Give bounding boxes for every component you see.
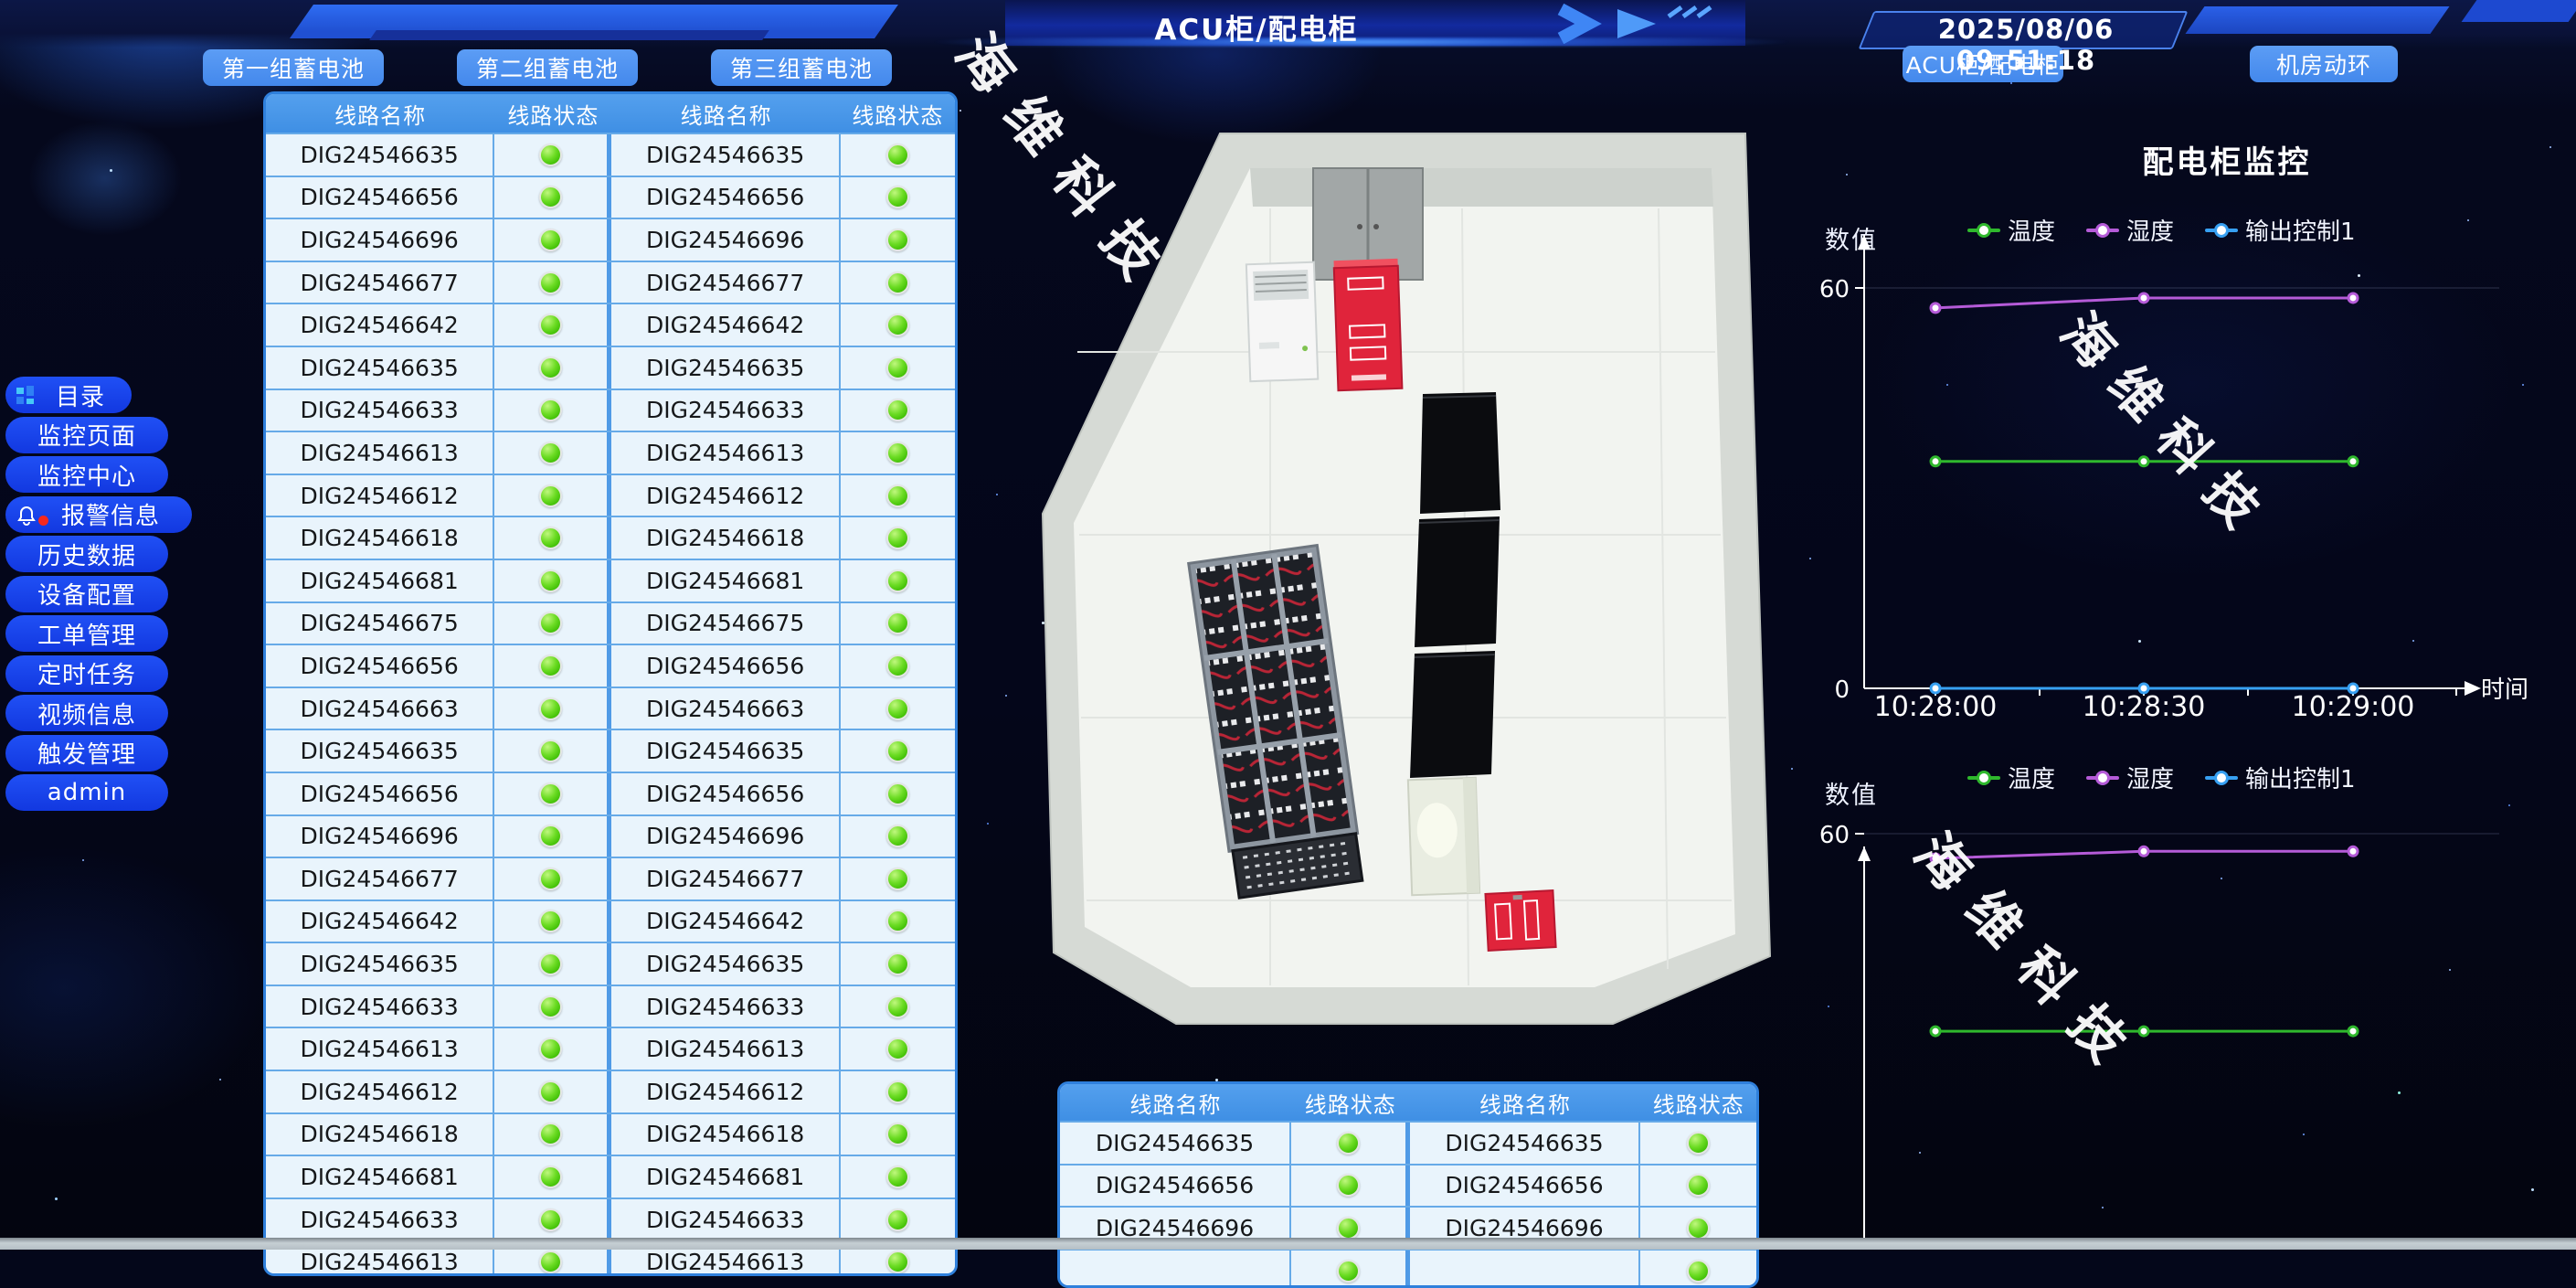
status-dot-green [886,399,909,421]
line-name-cell: DIG24546696 [266,816,494,857]
line-name-cell: DIG24546635 [1060,1123,1291,1164]
line-status-cell [494,603,611,644]
status-dot-green [886,569,909,592]
sidebar-item-video-info[interactable]: 视频信息 [5,695,168,731]
col-header-line-name: 线路名称 [1410,1084,1641,1121]
sidebar-item-trigger-manage[interactable]: 触发管理 [5,735,168,772]
line-name-cell: DIG24546612 [266,475,494,516]
line-name-cell: DIG24546663 [611,688,840,729]
status-dot-green [886,442,909,464]
status-dot-green [539,229,562,251]
col-header-line-name: 线路名称 [1060,1084,1291,1121]
sidebar-item-label: 报警信息 [61,497,160,531]
server-cabinets [1410,392,1500,778]
line-name-cell: DIG24546642 [611,901,840,942]
line-status-cell [841,1199,955,1240]
ac-unit [1246,262,1318,382]
status-dot-green [1687,1260,1710,1283]
status-dot-green [539,271,562,294]
fire-control-cabinet [1334,259,1403,390]
datetime-text: 2025/08/06 09:51:18 [1875,14,2177,76]
line-status-cell [841,1156,955,1198]
status-dot-green [539,1251,562,1273]
sidebar-item-alarm-info[interactable]: 报警信息 [5,496,192,533]
line-status-cell [841,475,955,516]
line-status-cell [494,986,611,1027]
line-name-cell: DIG24546633 [266,390,494,431]
line-status-cell [494,219,611,261]
table-row: DIG24546677DIG24546677 [266,857,955,899]
status-dot-green [539,825,562,847]
status-dot-green [886,357,909,379]
line-name-cell: DIG24546613 [266,432,494,474]
col-header-line-status: 线路状态 [1291,1084,1410,1121]
line-status-cell [494,390,611,431]
line-status-cell [494,645,611,687]
svg-text:60: 60 [1819,276,1850,303]
status-dot-green [886,953,909,975]
line-status-cell [841,177,955,218]
alarm-bell-icon [16,506,37,526]
line-status-cell [494,1028,611,1070]
line-name-cell: DIG24546656 [611,773,840,814]
line-status-cell [494,475,611,516]
status-dot-green [539,144,562,166]
sidebar-item-monitor-center[interactable]: 监控中心 [5,456,168,493]
line-status-cell [841,1071,955,1112]
line-status-cell [841,603,955,644]
line-status-cell [494,901,611,942]
line-name-cell: DIG24546663 [266,688,494,729]
status-dot-green [1687,1174,1710,1197]
line-name-cell: DIG24546675 [611,603,840,644]
line-status-cell [841,219,955,261]
svg-text:10:28:00: 10:28:00 [1874,691,1998,718]
table-row: DIG24546612DIG24546612 [266,474,955,516]
power-cabinet-chart-bottom: 数值 温度湿度输出控制1 60 [1805,722,2527,1250]
table-row: DIG24546663DIG24546663 [266,687,955,729]
status-dot-green [886,314,909,336]
fire-extinguisher-cabinet [1485,890,1555,951]
line-status-cell [494,134,611,176]
svg-text:10:28:30: 10:28:30 [2083,691,2206,718]
status-dot-green [539,1123,562,1145]
status-dot-green [539,442,562,464]
table-row: DIG24546677DIG24546677 [266,261,955,303]
line-status-cell [494,560,611,601]
sidebar-item-label: 历史数据 [37,538,136,571]
line-status-cell [841,304,955,346]
line-name-cell: DIG24546677 [611,858,840,899]
table-row: DIG24546681DIG24546681 [266,559,955,601]
status-dot-green [539,1166,562,1188]
line-name-cell: DIG24546635 [611,943,840,985]
status-dot-green [1337,1260,1360,1283]
table-row [1060,1249,1756,1288]
line-status-cell [494,1156,611,1198]
line-name-cell: DIG24546696 [611,816,840,857]
status-dot-green [539,399,562,421]
sidebar-item-scheduled-task[interactable]: 定时任务 [5,655,168,692]
line-name-cell: DIG24546613 [611,1028,840,1070]
table-row: DIG24546618DIG24546618 [266,516,955,559]
line-name-cell: DIG24546656 [611,177,840,218]
line-name-cell: DIG24546633 [611,1199,840,1240]
line-status-cell [494,1071,611,1112]
line-name-cell: DIG24546618 [266,517,494,559]
line-name-cell: DIG24546681 [611,560,840,601]
line-name-cell: DIG24546675 [266,603,494,644]
status-dot-green [539,697,562,720]
status-dot-green [539,995,562,1018]
status-dot-green [1337,1217,1360,1240]
status-dot-green [539,868,562,890]
status-dot-green [539,740,562,762]
status-dot-green [539,314,562,336]
table-row: DIG24546612DIG24546612 [266,1070,955,1112]
line-chart: 60 [1805,722,2527,1250]
line-name-cell [1410,1251,1641,1288]
chevron-right-icon [1553,4,1718,44]
line-status-table-left: 线路名称 线路状态 线路名称 线路状态 DIG24546635DIG245466… [263,91,958,1276]
table-row: DIG24546642DIG24546642 [266,303,955,346]
table-row: DIG24546656DIG24546656 [266,176,955,218]
status-dot-green [539,186,562,208]
status-dot-green [539,1038,562,1060]
table-row: DIG24546642DIG24546642 [266,899,955,942]
line-status-cell [494,858,611,899]
status-dot-green [1687,1217,1710,1240]
table-body: DIG24546635DIG24546635DIG24546656DIG2454… [266,133,955,1276]
line-name-cell: DIG24546635 [266,347,494,389]
line-name-cell: DIG24546633 [266,1199,494,1240]
status-dot-green [886,271,909,294]
line-name-cell: DIG24546612 [611,1071,840,1112]
line-name-cell: DIG24546633 [611,986,840,1027]
line-name-cell: DIG24546612 [266,1071,494,1112]
status-dot-green [886,144,909,166]
col-header-line-status: 线路状态 [841,94,955,133]
status-dot-green [886,782,909,805]
line-name-cell: DIG24546612 [611,475,840,516]
line-status-cell [841,560,955,601]
line-name-cell: DIG24546681 [266,1156,494,1198]
sidebar-item-catalog[interactable]: 目录 [5,377,132,413]
line-name-cell: DIG24546618 [611,517,840,559]
power-cabinet-chart-top: 数值 温度湿度输出控制1 60010:28:0010:28:3010:29:00… [1805,206,2527,718]
line-status-cell [494,1199,611,1240]
line-name-cell: DIG24546635 [266,730,494,772]
line-status-cell [1291,1251,1410,1288]
sidebar-item-label: 触发管理 [37,736,136,770]
status-dot-green [886,868,909,890]
table-row: DIG24546633DIG24546633 [266,1198,955,1240]
line-name-cell: DIG24546633 [266,986,494,1027]
status-dot-green [886,655,909,677]
line-name-cell: DIG24546642 [266,304,494,346]
status-dot-green [886,1251,909,1273]
line-name-cell: DIG24546656 [266,773,494,814]
sidebar-item-label: 视频信息 [37,697,136,730]
line-chart: 60010:28:0010:28:3010:29:00时间 [1805,206,2527,718]
svg-text:时间: 时间 [2481,676,2527,704]
status-dot-green [539,655,562,677]
svg-text:60: 60 [1819,822,1850,849]
line-name-cell: DIG24546656 [1410,1166,1641,1207]
table-row: DIG24546696DIG24546696 [266,218,955,261]
line-name-cell: DIG24546642 [266,901,494,942]
sidebar-item-history-data[interactable]: 历史数据 [5,536,168,572]
sidebar-menu: 目录 监控页面 监控中心 报警信息 历史数据 设备配置 工单管理 定时任务 视频… [5,377,179,814]
line-status-cell [841,517,955,559]
line-name-cell: DIG24546696 [266,219,494,261]
line-status-cell [1640,1166,1755,1207]
line-status-cell [841,262,955,303]
status-dot-green [539,910,562,932]
line-name-cell [1060,1251,1291,1288]
table-row: DIG24546681DIG24546681 [266,1155,955,1198]
status-dot-green [1687,1132,1710,1155]
table-row: DIG24546635DIG24546635 [266,133,955,176]
line-name-cell: DIG24546633 [611,390,840,431]
line-name-cell: DIG24546613 [611,432,840,474]
table-row: DIG24546696DIG24546696 [266,814,955,857]
line-status-cell [1640,1123,1755,1164]
status-dot-green [539,357,562,379]
header-deco-bar-left-shadow [369,30,769,40]
sidebar-item-admin[interactable]: admin [5,774,168,811]
line-status-cell [1640,1251,1755,1288]
status-dot-green [886,612,909,634]
svg-text:10:29:00: 10:29:00 [2292,691,2415,718]
table-header: 线路名称 线路状态 线路名称 线路状态 [266,94,955,133]
line-status-cell [841,730,955,772]
status-dot-green [886,1038,909,1060]
line-status-cell [841,432,955,474]
status-dot-green [886,229,909,251]
line-name-cell: DIG24546618 [266,1114,494,1155]
line-name-cell: DIG24546681 [266,560,494,601]
status-dot-green [886,1123,909,1145]
col-header-line-name: 线路名称 [611,94,840,133]
table-body: DIG24546635DIG24546635DIG24546656DIG2454… [1060,1121,1756,1288]
line-name-cell: DIG24546656 [266,177,494,218]
table-row: DIG24546635DIG24546635 [266,942,955,985]
col-header-line-name: 线路名称 [266,94,494,133]
table-row: DIG24546635DIG24546635 [266,729,955,772]
sidebar-item-label: 监控页面 [37,418,136,452]
table-header: 线路名称 线路状态 线路名称 线路状态 [1060,1084,1756,1121]
sidebar-item-label: admin [48,779,126,806]
table-row: DIG24546656DIG24546656 [1060,1164,1756,1207]
line-status-cell [494,943,611,985]
line-status-cell [841,986,955,1027]
battery-group-3-button[interactable]: 第三组蓄电池 [711,49,892,86]
machine-room-3d-view[interactable] [1028,119,1777,1042]
line-status-cell [841,1114,955,1155]
line-status-cell [841,1028,955,1070]
sidebar-item-label: 工单管理 [37,617,136,651]
status-dot-green [886,484,909,507]
line-status-cell [1291,1123,1410,1164]
status-dot-green [1337,1174,1360,1197]
line-status-cell [494,773,611,814]
line-name-cell: DIG24546696 [611,219,840,261]
line-name-cell: DIG24546677 [266,262,494,303]
pale-cabinet [1408,778,1479,896]
line-status-cell [841,390,955,431]
line-status-cell [494,816,611,857]
line-name-cell: DIG24546677 [611,262,840,303]
col-header-line-status: 线路状态 [494,94,611,133]
line-status-cell [494,304,611,346]
table-row: DIG24546613DIG24546613 [266,1027,955,1070]
line-status-cell [494,517,611,559]
sidebar-item-label: 定时任务 [37,656,136,690]
line-status-table-bottom: 线路名称 线路状态 线路名称 线路状态 DIG24546635DIG245466… [1057,1081,1759,1288]
status-dot-green [886,740,909,762]
table-row: DIG24546633DIG24546633 [266,389,955,431]
svg-text:0: 0 [1834,676,1850,704]
status-dot-green [886,995,909,1018]
line-name-cell: DIG24546635 [266,134,494,176]
table-row: DIG24546613DIG24546613 [266,431,955,474]
line-name-cell: DIG24546656 [1060,1166,1291,1207]
line-status-cell [494,1114,611,1155]
line-status-cell [494,730,611,772]
sidebar-item-label: 监控中心 [37,458,136,492]
monitor-section-title: 配电柜监控 [2044,137,2410,182]
status-dot-green [886,1208,909,1231]
header-deco-bar-right-2 [2462,0,2576,22]
status-dot-green [539,569,562,592]
table-row: DIG24546656DIG24546656 [266,772,955,814]
battery-group-2-button[interactable]: 第二组蓄电池 [457,49,638,86]
table-row: DIG24546656DIG24546656 [266,644,955,687]
line-name-cell: DIG24546613 [266,1028,494,1070]
line-name-cell: DIG24546677 [266,858,494,899]
table-row: DIG24546635DIG24546635 [266,346,955,389]
table-row: DIG24546675DIG24546675 [266,601,955,644]
line-name-cell: DIG24546681 [611,1156,840,1198]
status-dot-green [886,1166,909,1188]
status-dot-green [886,186,909,208]
alarm-badge [38,516,48,526]
line-name-cell: DIG24546635 [611,134,840,176]
line-status-cell [841,816,955,857]
line-name-cell: DIG24546656 [266,645,494,687]
line-status-cell [841,645,955,687]
line-name-cell: DIG24546635 [611,347,840,389]
status-dot-green [539,1080,562,1103]
line-status-cell [494,347,611,389]
status-dot-green [539,484,562,507]
battery-group-1-button[interactable]: 第一组蓄电池 [203,49,384,86]
line-status-cell [494,688,611,729]
status-dot-green [886,527,909,549]
sidebar-item-label: 目录 [56,378,105,412]
status-dot-green [886,910,909,932]
status-dot-green [539,1208,562,1231]
line-status-cell [841,134,955,176]
line-name-cell: DIG24546635 [266,943,494,985]
page-title: ACU柜/配电柜 [1001,6,1512,48]
line-status-cell [841,773,955,814]
sidebar-item-monitor-page[interactable]: 监控页面 [5,417,168,453]
status-dot-green [1337,1132,1360,1155]
line-status-cell [494,177,611,218]
machine-room-env-button[interactable]: 机房动环 [2250,46,2398,82]
table-row: DIG24546618DIG24546618 [266,1112,955,1155]
status-dot-green [539,527,562,549]
horizontal-scrollbar[interactable] [0,1238,2576,1250]
table-row: DIG24546635DIG24546635 [1060,1121,1756,1164]
header-deco-bar-right [2185,6,2449,34]
status-dot-green [886,697,909,720]
status-dot-green [886,1080,909,1103]
line-name-cell: DIG24546635 [611,730,840,772]
col-header-line-status: 线路状态 [1640,1084,1755,1121]
status-dot-green [539,953,562,975]
status-dot-green [539,782,562,805]
menu-grid-icon [16,386,37,406]
line-status-cell [841,688,955,729]
sidebar-item-work-order[interactable]: 工单管理 [5,615,168,652]
line-status-cell [494,432,611,474]
sidebar-item-label: 设备配置 [37,577,136,611]
line-name-cell: DIG24546618 [611,1114,840,1155]
line-name-cell: DIG24546635 [1410,1123,1641,1164]
line-status-cell [841,858,955,899]
status-dot-green [539,612,562,634]
line-status-cell [841,943,955,985]
line-status-cell [494,262,611,303]
status-dot-green [886,825,909,847]
line-status-cell [841,347,955,389]
table-row: DIG24546633DIG24546633 [266,985,955,1027]
line-status-cell [1291,1166,1410,1207]
line-name-cell: DIG24546642 [611,304,840,346]
line-name-cell: DIG24546656 [611,645,840,687]
sidebar-item-device-config[interactable]: 设备配置 [5,576,168,612]
line-status-cell [841,901,955,942]
